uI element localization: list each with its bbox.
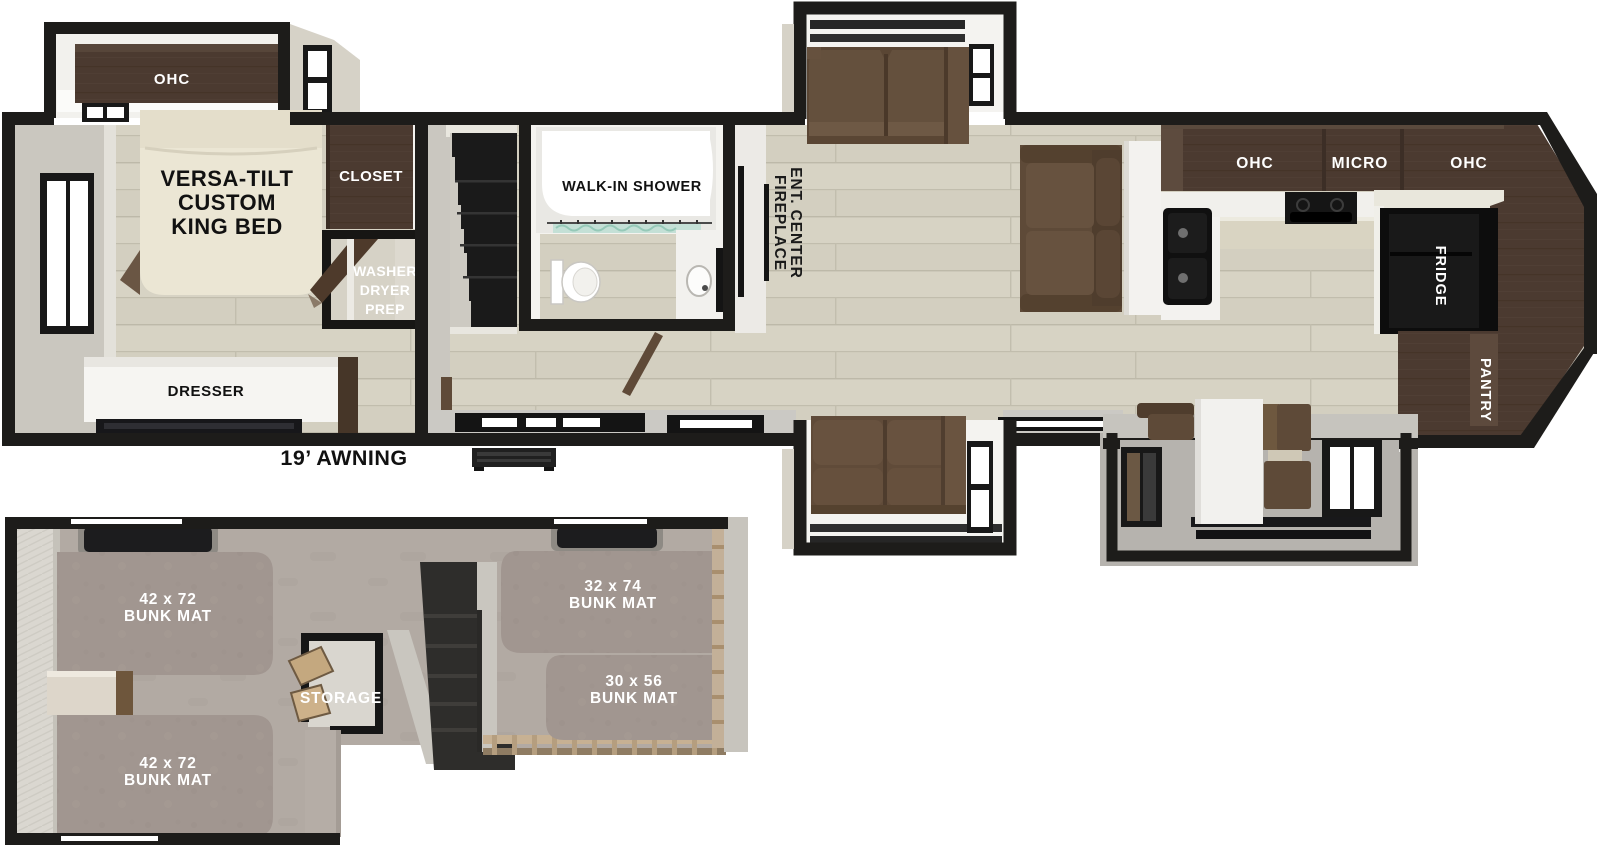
- svg-text:STORAGE: STORAGE: [300, 690, 382, 707]
- svg-text:DRYER: DRYER: [360, 282, 411, 298]
- svg-text:WASHER: WASHER: [353, 263, 417, 279]
- svg-text:CUSTOM: CUSTOM: [178, 190, 276, 215]
- svg-text:DRESSER: DRESSER: [168, 383, 245, 400]
- svg-text:VERSA-TILT: VERSA-TILT: [161, 166, 294, 191]
- svg-text:42 x 72: 42 x 72: [139, 591, 196, 608]
- svg-text:BUNK MAT: BUNK MAT: [124, 608, 212, 625]
- svg-text:BUNK MAT: BUNK MAT: [569, 595, 657, 612]
- svg-text:BUNK MAT: BUNK MAT: [590, 690, 678, 707]
- svg-text:BUNK MAT: BUNK MAT: [124, 772, 212, 789]
- svg-text:30 x 56: 30 x 56: [605, 673, 662, 690]
- svg-text:32 x 74: 32 x 74: [584, 578, 641, 595]
- svg-text:PANTRY: PANTRY: [1477, 358, 1493, 422]
- svg-text:OHC: OHC: [154, 71, 190, 88]
- svg-text:OHC: OHC: [1236, 155, 1273, 172]
- svg-text:19’ AWNING: 19’ AWNING: [280, 446, 407, 470]
- svg-text:OHC: OHC: [1450, 155, 1487, 172]
- svg-text:FIREPLACE: FIREPLACE: [771, 175, 788, 271]
- svg-text:ENT. CENTER: ENT. CENTER: [787, 167, 804, 279]
- svg-text:FRIDGE: FRIDGE: [1432, 246, 1448, 307]
- svg-text:CLOSET: CLOSET: [339, 168, 403, 185]
- svg-text:MICRO: MICRO: [1332, 155, 1389, 172]
- svg-text:WALK-IN SHOWER: WALK-IN SHOWER: [562, 179, 702, 195]
- svg-text:PREP: PREP: [365, 301, 405, 317]
- svg-text:KING BED: KING BED: [171, 214, 283, 239]
- svg-text:42 x 72: 42 x 72: [139, 755, 196, 772]
